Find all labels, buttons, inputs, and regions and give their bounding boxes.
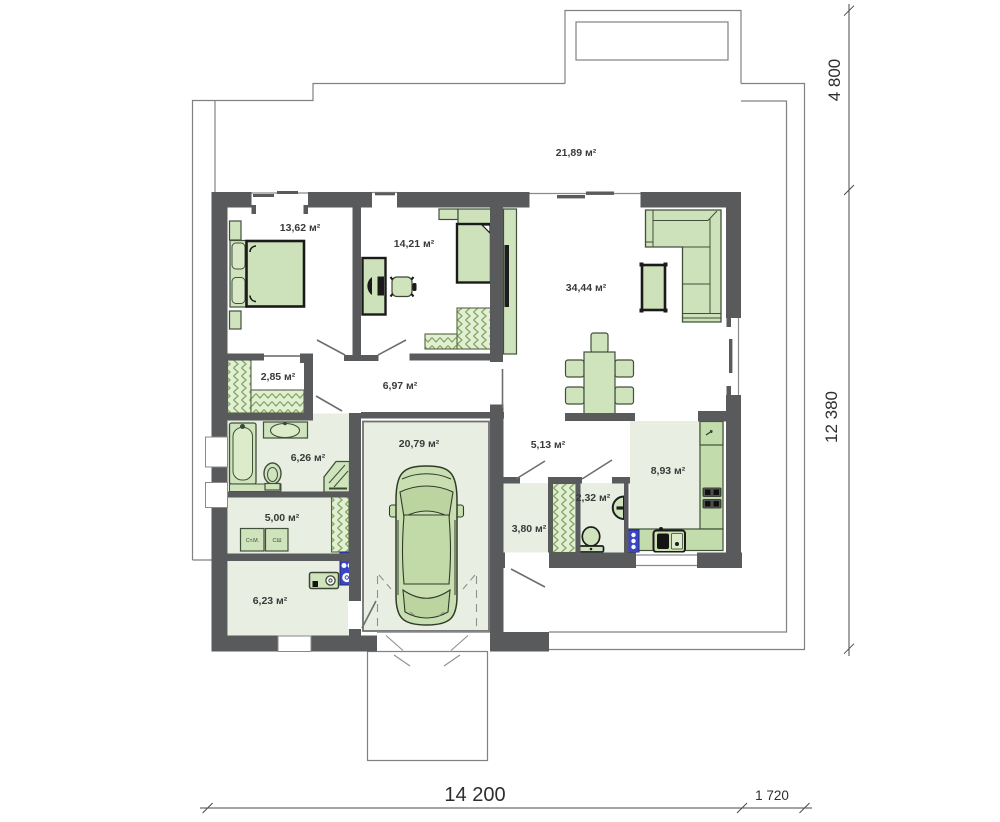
svg-text:2,85 м²: 2,85 м² <box>261 371 296 383</box>
svg-text:21,89 м²: 21,89 м² <box>556 147 597 159</box>
svg-text:5,00 м²: 5,00 м² <box>265 512 300 524</box>
svg-text:3,80 м²: 3,80 м² <box>512 523 547 535</box>
svg-text:6,26 м²: 6,26 м² <box>291 452 326 464</box>
svg-text:13,62 м²: 13,62 м² <box>280 222 321 234</box>
svg-text:4 800: 4 800 <box>825 59 844 102</box>
svg-text:34,44 м²: 34,44 м² <box>566 282 607 294</box>
svg-text:14,21 м²: 14,21 м² <box>394 238 435 250</box>
svg-text:1 720: 1 720 <box>755 788 789 803</box>
svg-text:СШ: СШ <box>272 538 281 544</box>
svg-text:Ст.М.: Ст.М. <box>246 538 260 544</box>
svg-text:14 200: 14 200 <box>444 784 505 806</box>
svg-text:20,79 м²: 20,79 м² <box>399 438 440 450</box>
svg-text:12 380: 12 380 <box>822 391 841 443</box>
svg-text:6,97 м²: 6,97 м² <box>383 380 418 392</box>
svg-text:8,93 м²: 8,93 м² <box>651 465 686 477</box>
svg-text:2,32 м²: 2,32 м² <box>576 492 611 504</box>
svg-text:6,23 м²: 6,23 м² <box>253 595 288 607</box>
svg-text:5,13 м²: 5,13 м² <box>531 439 566 451</box>
